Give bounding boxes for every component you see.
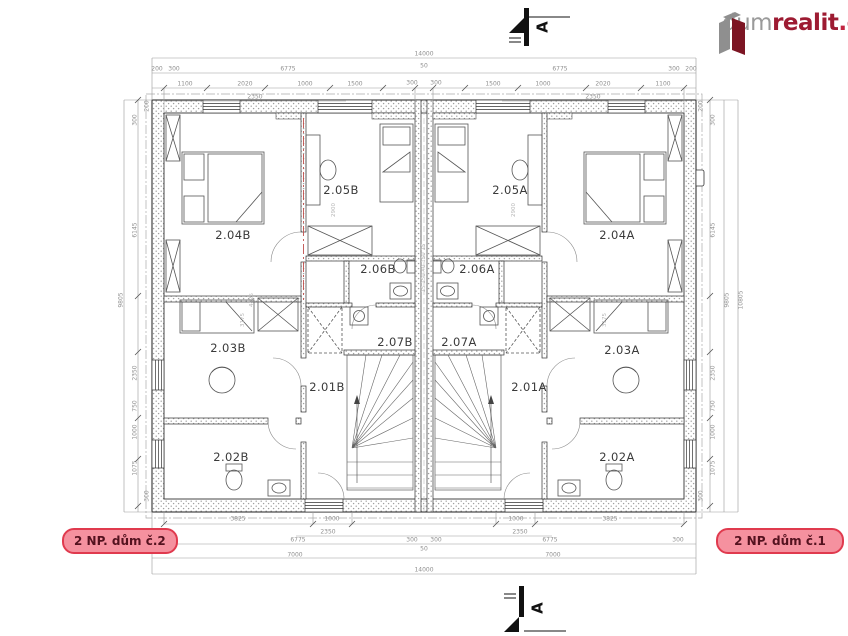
logo-word-suffix: .cz — [838, 10, 848, 36]
section-marker-top: A — [509, 8, 570, 46]
logo-word-realit: realit — [772, 10, 838, 36]
exterior-wall — [152, 100, 696, 512]
logo: dumrealit.cz — [715, 10, 848, 36]
chimney — [696, 170, 704, 186]
section-letter-bottom: A — [529, 602, 547, 614]
wall-pier — [276, 113, 304, 119]
unit-label-left: 2 NP. dům č.2 — [62, 528, 178, 554]
logo-building-icon — [715, 10, 749, 56]
wall-pier — [372, 113, 415, 119]
section-letter-top: A — [534, 21, 552, 33]
floorplan-page: A A 2.04B2.05B2.06B2.07B2.01B2.03B2.02B2… — [0, 0, 848, 636]
unit-label-right: 2 NP. dům č.1 — [716, 528, 844, 554]
section-marker-bottom: A — [504, 586, 566, 632]
